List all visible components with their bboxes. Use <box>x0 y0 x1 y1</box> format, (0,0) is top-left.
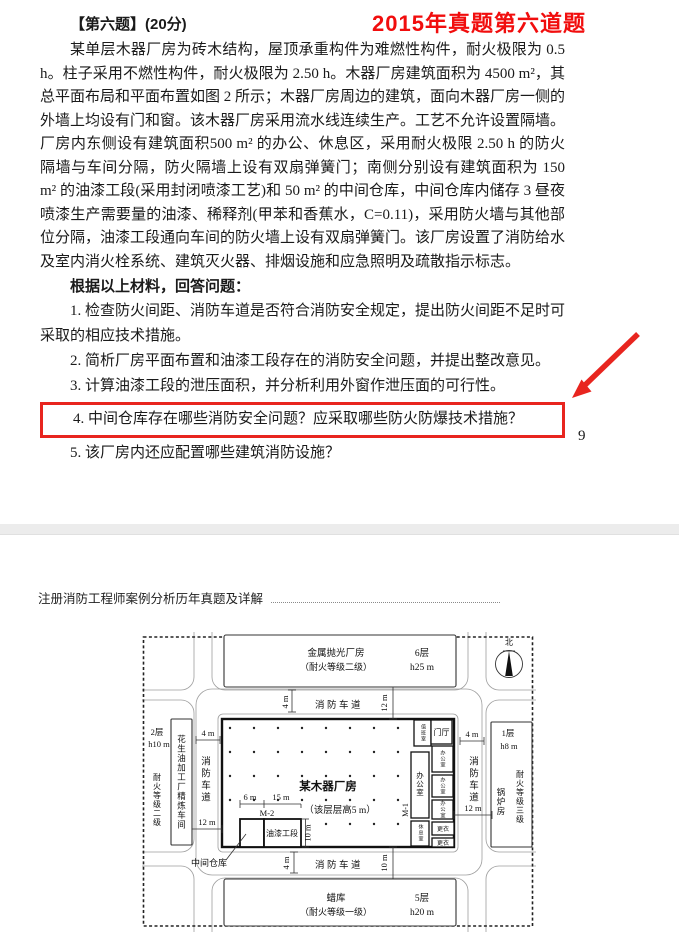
fire-lane-bottom: 消防车道 <box>315 859 363 871</box>
dim-bottom-lane-width: 4 m <box>281 856 291 869</box>
top-building-name: 金属抛光厂房 <box>307 647 364 659</box>
running-header-text: 注册消防工程师案例分析历年真题及详解 <box>38 588 263 607</box>
office-1-label: 办公室 <box>440 748 446 768</box>
door-m1-label: M-1 <box>401 803 410 817</box>
site-plan-figure: 金属抛光厂房 （耐火等级二级） 6层 h25 m 蜡库 （耐火等级一级） 5层 … <box>142 632 536 932</box>
main-building-name: 某木器厂房 <box>298 779 357 793</box>
bottom-building-name: 蜡库 <box>326 892 346 904</box>
fire-lane-top: 消防车道 <box>315 699 363 711</box>
red-highlight-box: 4. 中间仓库存在哪些消防安全问题？应采取哪些防火防爆技术措施？ <box>40 402 565 438</box>
main-building-note: （该层层高5 m） <box>304 804 376 816</box>
red-annotation-text: 2015年真题第六道题 <box>372 6 586 38</box>
door-m2-label: M-2 <box>260 808 275 818</box>
scanned-document: 2015年真题第六道题 【第六题】(20分) 某单层木器厂房为砖木结构，屋顶承重… <box>0 0 679 932</box>
intermediate-warehouse-room <box>240 819 264 847</box>
dim-right-lane-width: 4 m <box>466 729 479 739</box>
fire-lane-left: 消防车道 <box>199 755 211 804</box>
exam-question-page: 2015年真题第六道题 【第六题】(20分) 某单层木器厂房为砖木结构，屋顶承重… <box>0 0 679 524</box>
office-main-label: 办公室 <box>415 770 424 797</box>
left-building-height: h10 m <box>148 739 170 749</box>
right-building-name: 锅炉房 <box>496 787 506 816</box>
dim-warehouse-width: 6 m <box>244 792 257 802</box>
metal-polish-plant <box>224 635 456 687</box>
question-body-paragraph: 某单层木器厂房为砖木结构，屋顶承重构件为难燃性构件，耐火极限为 0.5 h。柱子… <box>40 39 565 274</box>
rest-room-label: 休息室 <box>418 823 424 842</box>
dim-left-lane-width: 4 m <box>202 728 215 738</box>
question-item-1: 1. 检查防火间距、消防车道是否符合消防安全规定，提出防火间距不足时可采取的相应… <box>40 299 565 349</box>
left-building-floors: 2层 <box>151 727 164 737</box>
dim-top-lane-width: 4 m <box>280 695 290 708</box>
answer-prompt: 根据以上材料，回答问题： <box>40 274 565 299</box>
right-building-floors: 1层 <box>502 728 515 738</box>
north-compass-icon: 北 <box>496 638 523 678</box>
entrance-hall-label: 门厅 <box>434 727 450 737</box>
locker-1-label: 更衣 <box>437 825 449 833</box>
question-item-2: 2. 简析厂房平面布置和油漆工段存在的消防安全问题，并提出整改意见。 <box>40 349 565 374</box>
bottom-building-rating: （耐火等级一级） <box>300 906 372 917</box>
bottom-building-floors: 5层 <box>415 893 429 904</box>
right-building-rating: 耐火等级三级 <box>516 769 525 824</box>
north-label: 北 <box>505 638 513 647</box>
dim-left-separation: 12 m <box>198 817 216 827</box>
paint-section-label: 油漆工段 <box>266 828 298 838</box>
red-arrow-icon <box>558 330 650 406</box>
dim-paint-width: 15 m <box>272 792 290 802</box>
intermediate-warehouse-label: 中间仓库 <box>191 857 227 868</box>
office-3-label: 办公室 <box>440 799 446 819</box>
bottom-building-height: h20 m <box>410 908 435 918</box>
left-building-name: 花生油加工厂精炼车间 <box>177 734 187 830</box>
top-building-height: h25 m <box>410 663 435 673</box>
dim-room-depth: 10 m <box>303 824 313 842</box>
dim-bottom-separation: 10 m <box>379 854 389 872</box>
top-building-rating: （耐火等级二级） <box>300 661 372 672</box>
page-gap-divider <box>0 524 679 535</box>
dotted-leader <box>271 593 500 603</box>
page-number: 9 <box>578 428 586 445</box>
question-item-5: 5. 该厂房内还应配置哪些建筑消防设施？ <box>40 441 565 466</box>
left-building-rating: 耐火等级二级 <box>153 772 162 827</box>
dim-right-separation: 12 m <box>464 803 482 813</box>
fire-lane-right: 消防车道 <box>467 755 479 804</box>
right-building-height: h8 m <box>500 741 518 751</box>
top-building-floors: 6层 <box>415 648 429 659</box>
question-item-3: 3. 计算油漆工段的泄压面积，并分析利用外窗作泄压面的可行性。 <box>40 374 565 399</box>
duty-room-label: 值班室 <box>420 723 426 742</box>
running-header: 注册消防工程师案例分析历年真题及详解 <box>38 588 500 607</box>
office-2-label: 办公室 <box>440 775 446 795</box>
dim-top-separation: 12 m <box>379 694 389 712</box>
figure-page: 注册消防工程师案例分析历年真题及详解 <box>0 535 679 932</box>
locker-2-label: 更衣 <box>437 839 449 847</box>
question-item-4: 4. 中间仓库存在哪些消防安全问题？应采取哪些防火防爆技术措施？ <box>43 407 556 432</box>
